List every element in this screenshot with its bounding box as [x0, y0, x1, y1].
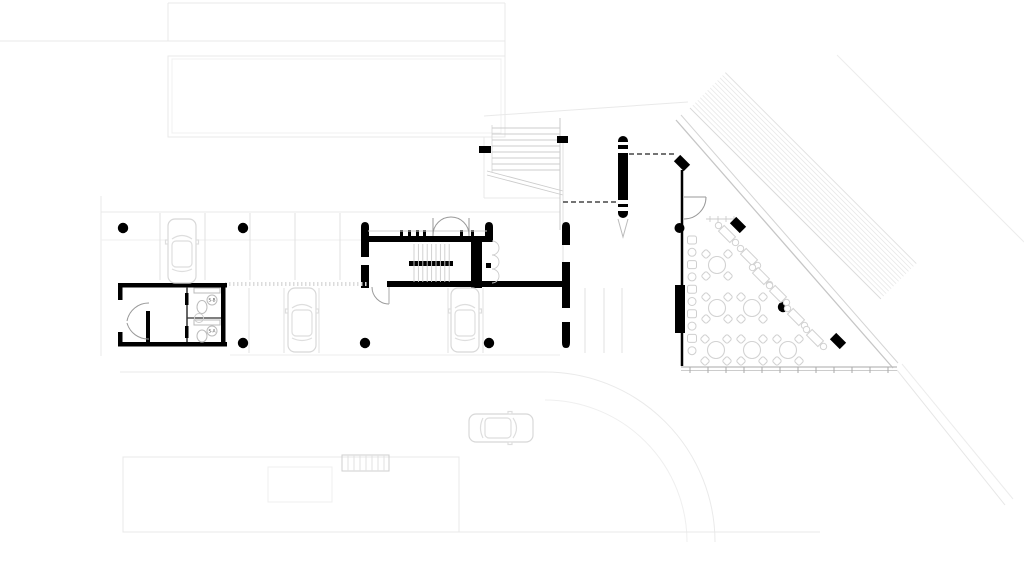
floor-plan-svg: S-B S-A	[0, 0, 1024, 581]
cafe-wall-pier	[675, 285, 685, 333]
bar-stool	[688, 298, 696, 306]
diamond-column	[674, 155, 690, 171]
cafe-table	[736, 292, 768, 324]
cafe-entry-door	[684, 197, 706, 219]
bar-stool	[688, 285, 697, 293]
bar-stool	[688, 273, 696, 281]
core-exit-door	[372, 287, 389, 304]
wc-vestibule-stub	[146, 311, 150, 346]
round-column	[484, 338, 494, 348]
car	[286, 288, 319, 352]
striped-pier	[562, 222, 570, 348]
floor-plan-canvas: S-B S-A	[0, 0, 1024, 581]
wc-block: S-B S-A	[118, 283, 227, 347]
ramp-pier	[617, 136, 630, 237]
wc-fixtures	[194, 288, 220, 342]
car	[449, 288, 482, 352]
bar-stool	[688, 310, 697, 318]
car	[166, 219, 199, 283]
cafe-diag-table	[764, 280, 791, 307]
round-column	[238, 223, 248, 233]
round-column	[238, 338, 248, 348]
diamond-column	[830, 333, 846, 349]
stair-handrail	[409, 261, 453, 266]
bar-stool	[688, 236, 697, 244]
round-column	[360, 338, 370, 348]
wall-column-bump	[675, 223, 685, 233]
wc-stall-door-2	[185, 326, 189, 338]
coat-scallops	[492, 241, 499, 283]
bar-stool	[688, 248, 696, 256]
stair-wall-stub-left	[479, 146, 491, 153]
cafe-table	[700, 334, 732, 366]
round-column	[118, 223, 128, 233]
stair-wall-stub-right	[557, 136, 568, 143]
wc-entry-door	[127, 303, 149, 339]
cafe-table	[736, 334, 768, 366]
wc-stall-door-1	[185, 293, 189, 305]
door-hinge-block	[486, 263, 491, 268]
cafe-table	[701, 292, 733, 324]
core-right-pier	[485, 222, 493, 242]
bar-stool	[688, 347, 696, 355]
core-double-door	[433, 217, 469, 236]
bar-stool	[688, 261, 697, 269]
bar-stool	[688, 322, 696, 330]
threshold-ticks	[706, 216, 734, 222]
core-left-pier-gap	[360, 257, 370, 265]
bar-stool	[688, 334, 697, 342]
core-top-wall	[368, 236, 487, 242]
cafe-table	[701, 249, 733, 281]
core-bottom-wall	[387, 281, 562, 287]
wc-stall-label-2: S-A	[209, 329, 216, 334]
cafe-table	[772, 334, 804, 366]
core-walls	[361, 222, 562, 288]
car	[469, 412, 533, 445]
core-left-pier	[361, 222, 369, 288]
wc-stall-label-1: S-B	[209, 298, 216, 303]
cafe-diag-table	[801, 324, 828, 351]
